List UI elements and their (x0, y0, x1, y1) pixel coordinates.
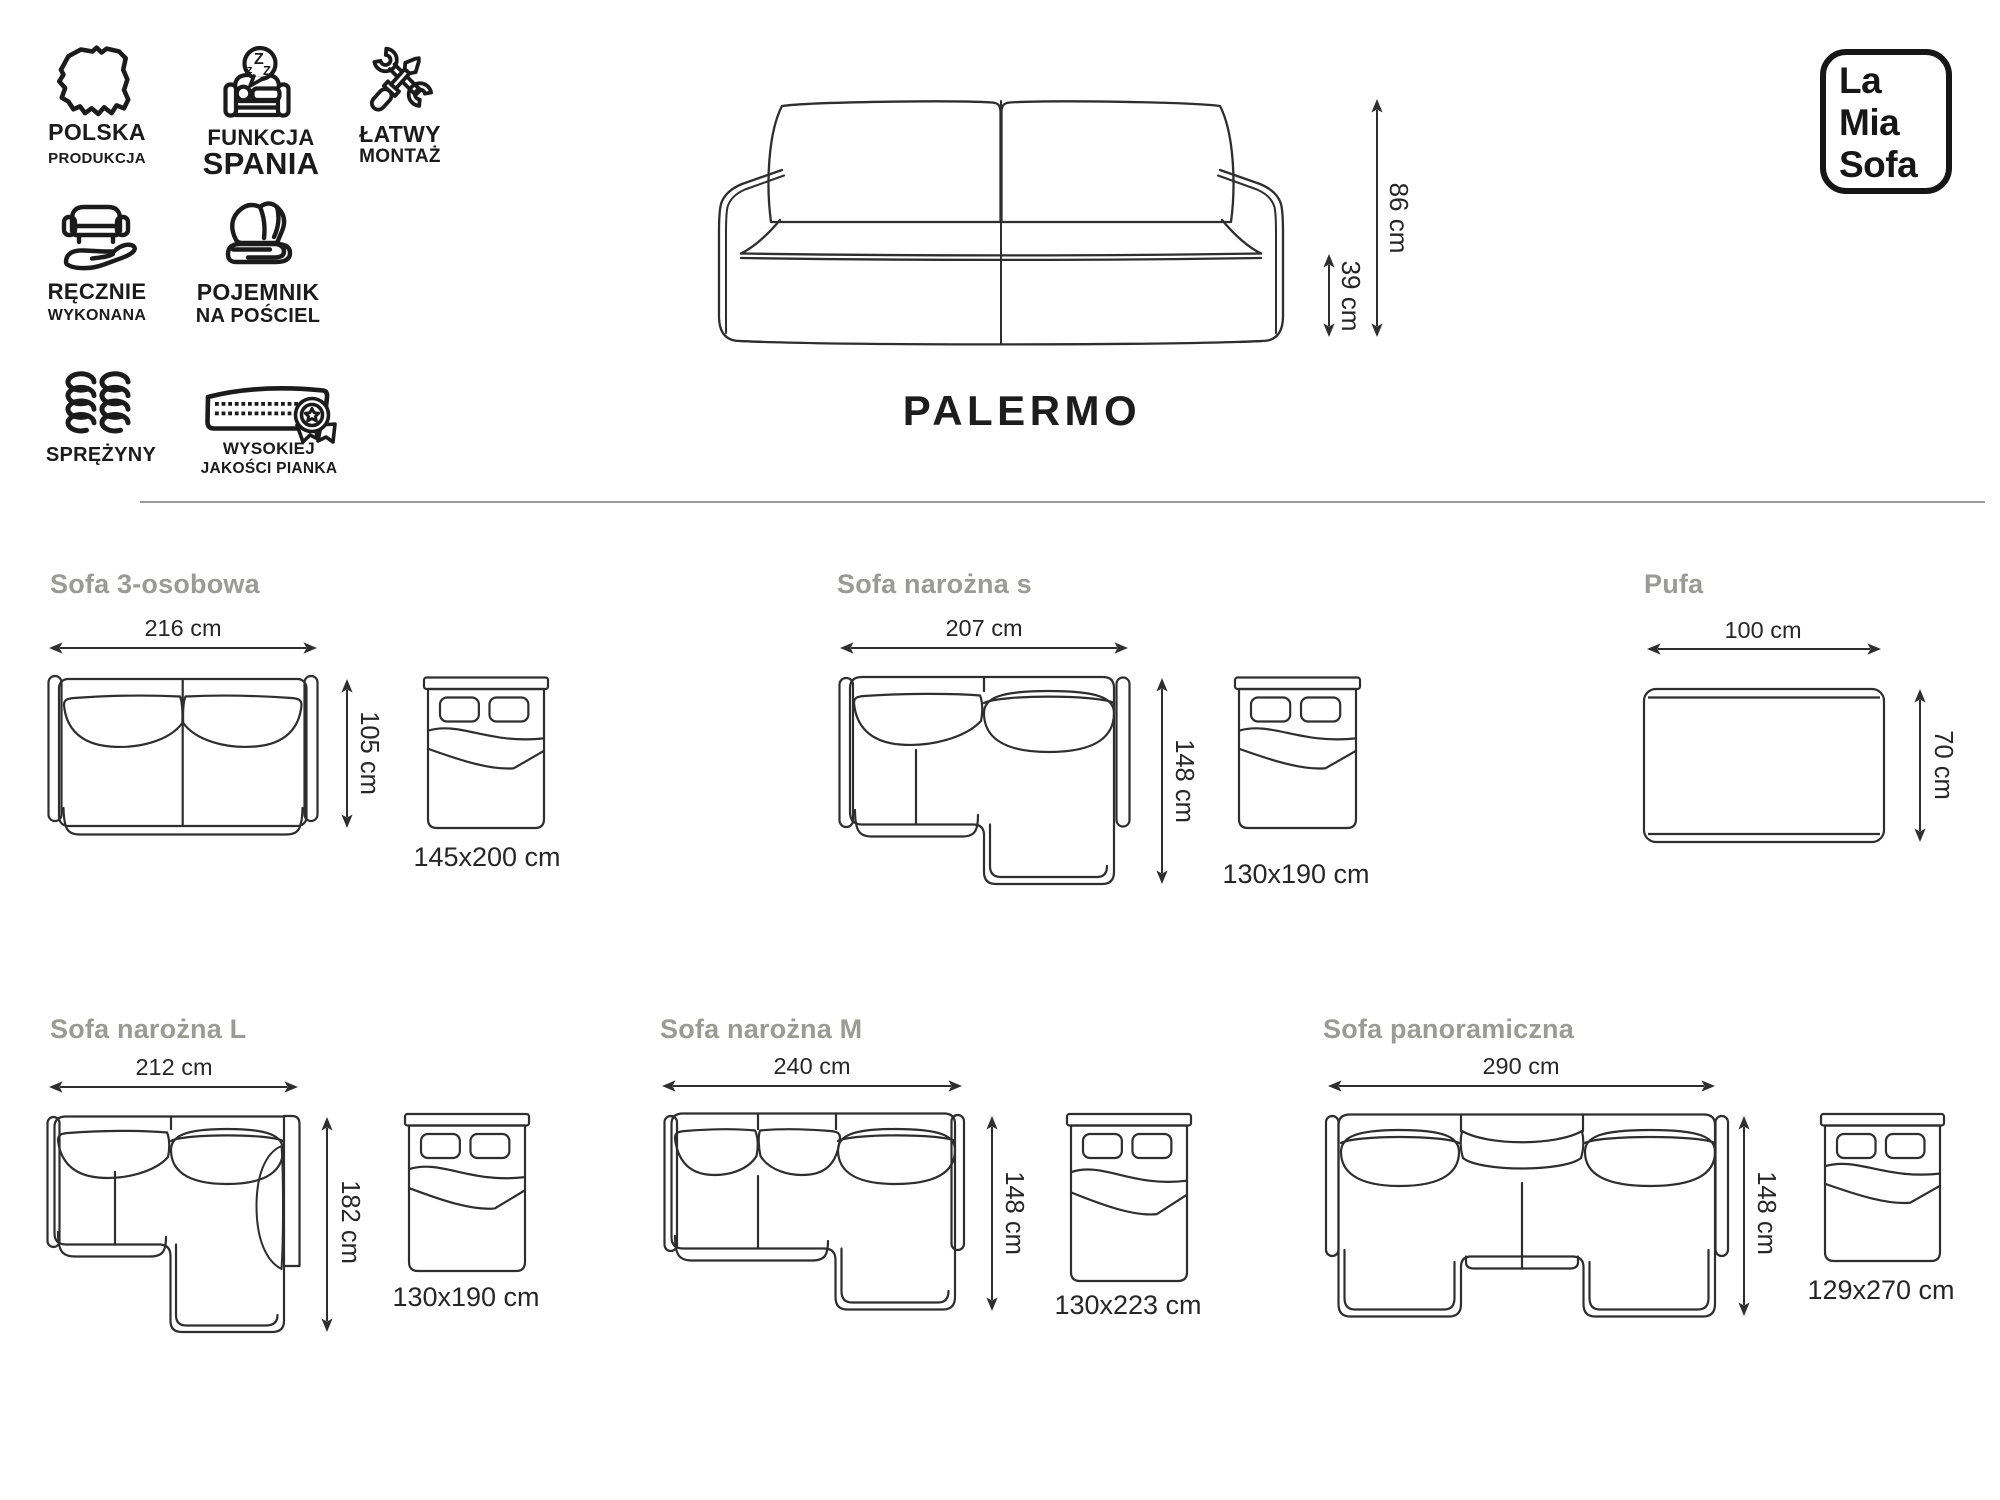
svg-text:Z: Z (263, 63, 271, 78)
svg-text:z: z (247, 64, 253, 76)
